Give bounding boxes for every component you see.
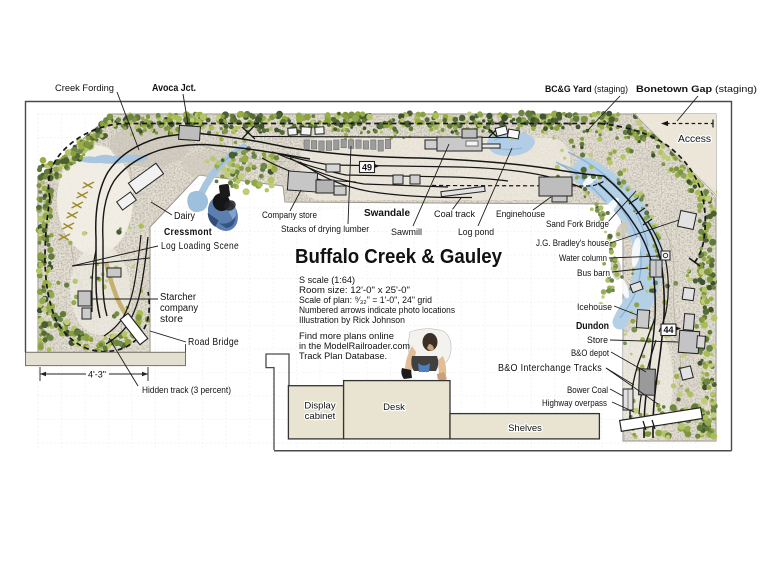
svg-text:Access: Access — [678, 134, 711, 145]
svg-text:Buffalo Creek & Gauley: Buffalo Creek & Gauley — [295, 246, 503, 268]
svg-text:BC&G Yard (staging): BC&G Yard (staging) — [545, 84, 628, 95]
svg-text:Bus barn: Bus barn — [577, 268, 610, 279]
svg-text:Shelves: Shelves — [508, 423, 542, 434]
svg-text:Log Loading Scene: Log Loading Scene — [161, 241, 239, 252]
svg-text:store: store — [160, 314, 183, 325]
svg-text:4'-3": 4'-3" — [88, 370, 106, 380]
svg-text:Road Bridge: Road Bridge — [188, 337, 239, 348]
svg-text:Bonetown Gap (staging): Bonetown Gap (staging) — [636, 84, 757, 95]
svg-text:J.G. Bradley's house: J.G. Bradley's house — [536, 238, 609, 249]
svg-text:Dundon: Dundon — [576, 321, 609, 332]
svg-text:Water column: Water column — [559, 253, 607, 264]
svg-text:Display: Display — [304, 401, 335, 412]
svg-text:company: company — [160, 303, 198, 314]
svg-text:Bower Coal: Bower Coal — [567, 385, 608, 396]
svg-text:Coal track: Coal track — [434, 209, 475, 220]
svg-text:Icehouse: Icehouse — [577, 302, 612, 313]
svg-text:B&O Interchange Tracks: B&O Interchange Tracks — [498, 363, 602, 374]
svg-text:Company store: Company store — [262, 210, 317, 221]
svg-text:Sawmill: Sawmill — [391, 227, 422, 238]
svg-text:49: 49 — [362, 162, 372, 172]
svg-text:Enginehouse: Enginehouse — [496, 209, 545, 220]
svg-text:44: 44 — [663, 325, 673, 335]
svg-text:B&O depot: B&O depot — [571, 348, 609, 359]
svg-text:Store: Store — [587, 335, 608, 346]
svg-text:Log pond: Log pond — [458, 227, 494, 238]
svg-text:Avoca Jct.: Avoca Jct. — [152, 83, 196, 94]
svg-text:Highway overpass: Highway overpass — [542, 398, 607, 409]
svg-text:Sand Fork Bridge: Sand Fork Bridge — [546, 219, 609, 230]
svg-text:Dairy: Dairy — [174, 211, 195, 222]
svg-text:Creek Fording: Creek Fording — [55, 83, 114, 94]
svg-text:Illustration by Rick Johnson: Illustration by Rick Johnson — [299, 315, 405, 326]
svg-text:Cressmont: Cressmont — [164, 226, 212, 238]
svg-text:Hidden track (3 percent): Hidden track (3 percent) — [142, 385, 231, 396]
svg-text:Track Plan Database.: Track Plan Database. — [299, 351, 387, 362]
svg-text:Starcher: Starcher — [160, 292, 197, 303]
svg-text:Stacks of drying lumber: Stacks of drying lumber — [281, 224, 369, 235]
svg-text:cabinet: cabinet — [305, 411, 336, 422]
svg-text:Desk: Desk — [383, 402, 405, 413]
svg-text:Swandale: Swandale — [364, 208, 410, 219]
